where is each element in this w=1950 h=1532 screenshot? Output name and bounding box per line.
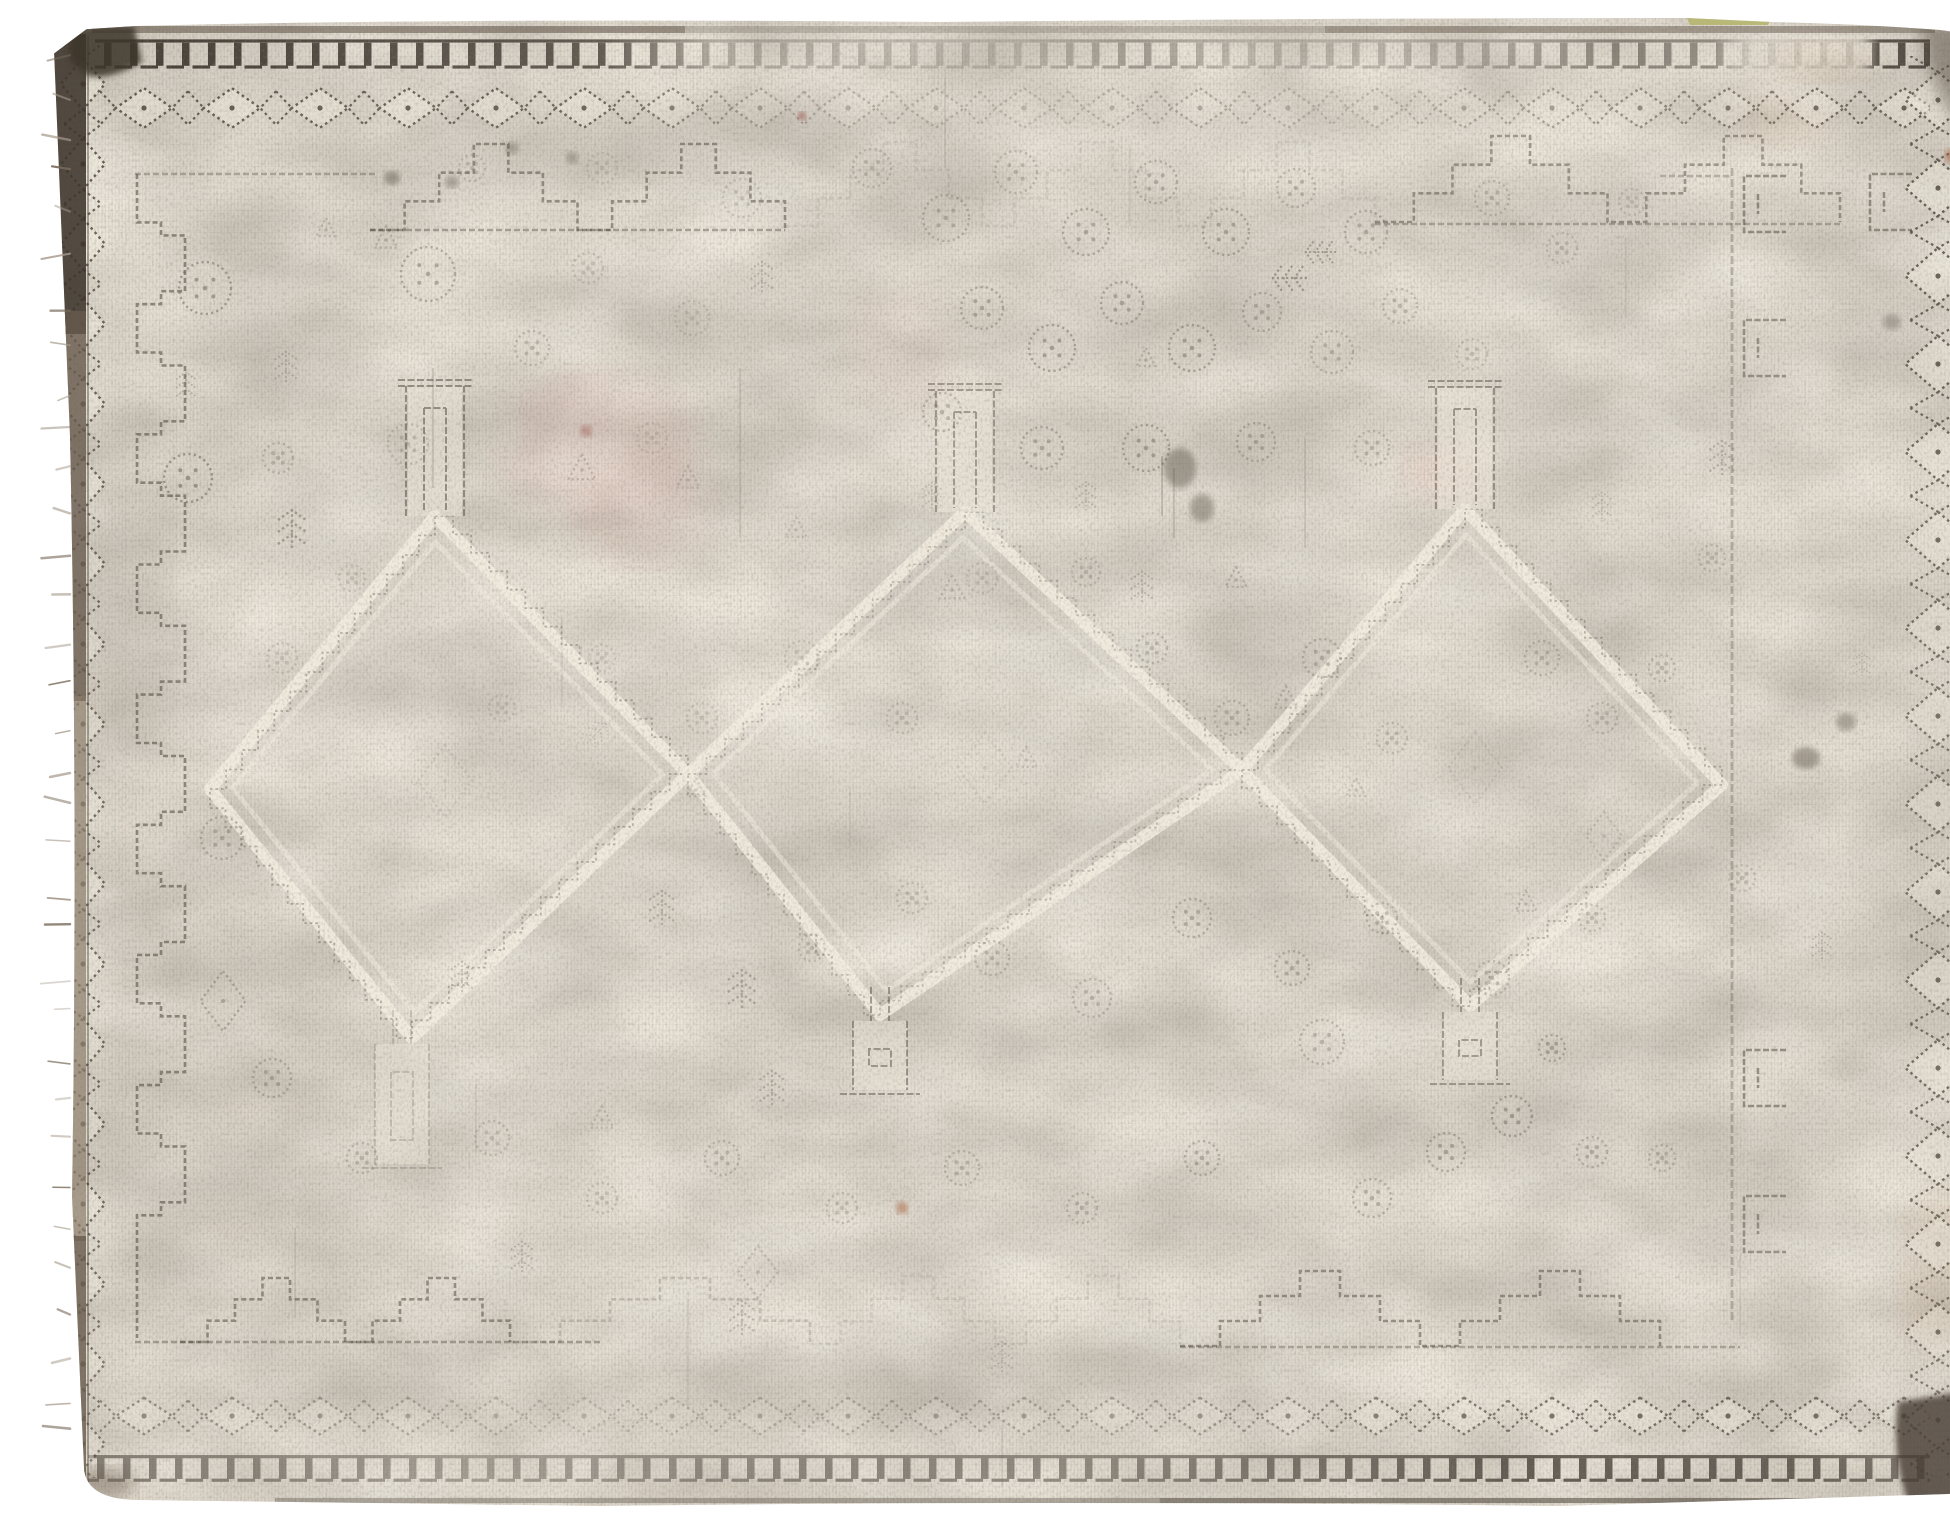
rug-photo: Vintage hand-woven tribal rug photograph…	[40, 16, 1950, 1516]
rug-image	[40, 16, 1950, 1516]
bottom-edge	[275, 1498, 1160, 1503]
top-edge	[1325, 26, 1935, 33]
top-edge	[92, 26, 685, 33]
rug-body	[40, 16, 1950, 1516]
top-edge	[685, 26, 1325, 33]
